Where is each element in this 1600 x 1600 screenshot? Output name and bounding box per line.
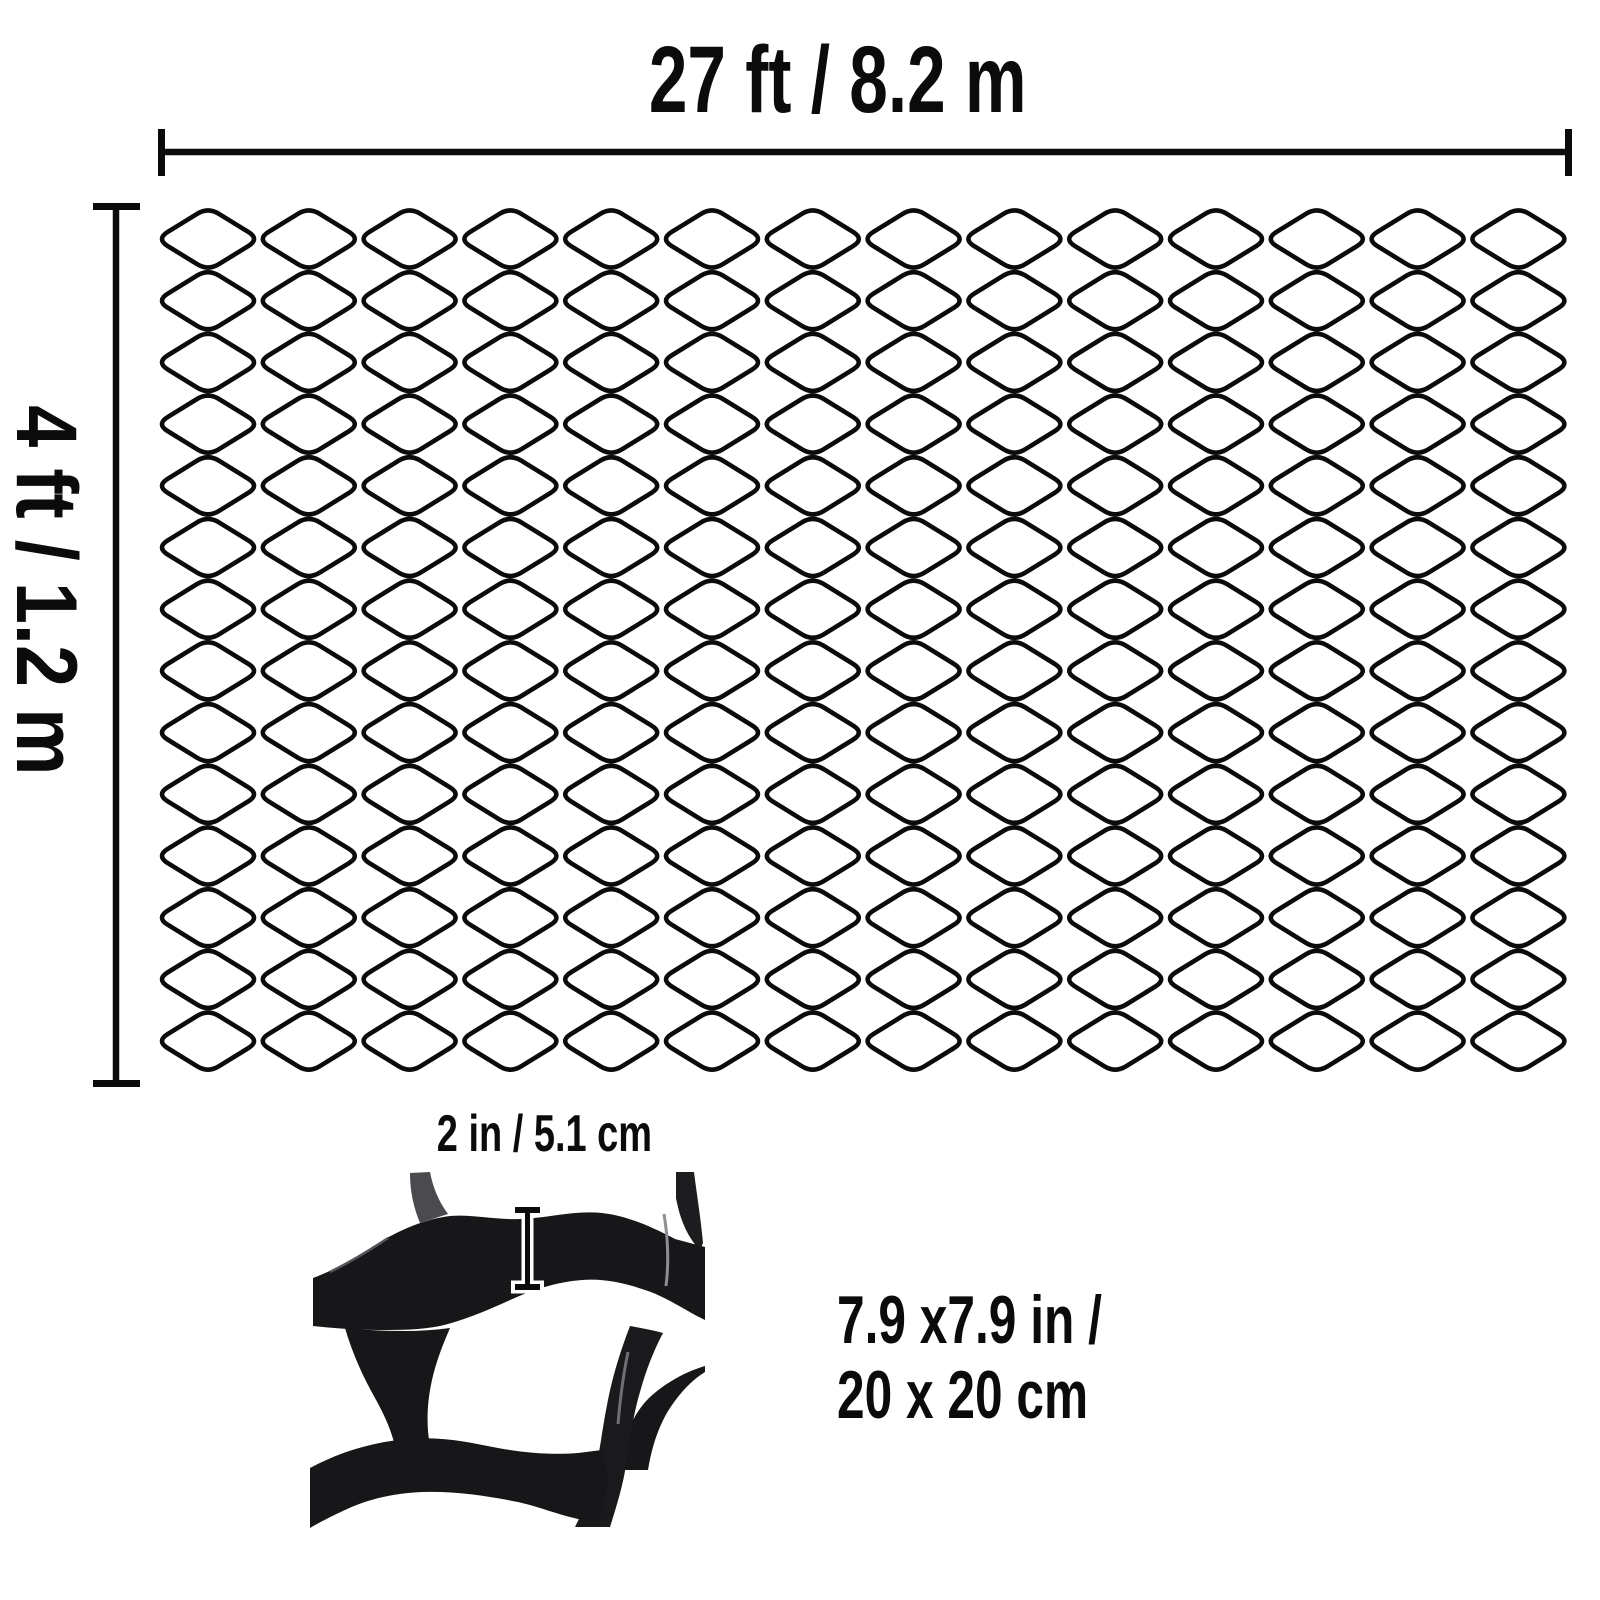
cell-size-line1: 7.9 x7.9 in / [837, 1283, 1102, 1358]
diagram-canvas [0, 0, 1600, 1600]
strip-height-text: 2 in / 5.1 cm [436, 1108, 651, 1160]
photo-strip-top-band [313, 1212, 705, 1330]
cell-size-line2: 20 x 20 cm [837, 1358, 1102, 1433]
photo-strip-fin-left [410, 1172, 448, 1223]
product-dimension-diagram: 27 ft / 8.2 m 4 ft / 1.2 m 2 in / 5.1 cm… [0, 0, 1600, 1600]
photo-strip-fin-right [676, 1172, 703, 1250]
height-dimension-label: 4 ft / 1.2 m [0, 340, 96, 840]
height-dimension-text: 4 ft / 1.2 m [0, 405, 96, 775]
photo-strip-bottom-band [310, 1438, 607, 1528]
cell-size-label: 7.9 x7.9 in / 20 x 20 cm [837, 1283, 1102, 1433]
mesh-pattern [162, 210, 1564, 1069]
geocell-photo [310, 1172, 705, 1528]
photo-strip-left [345, 1328, 450, 1450]
width-dimension-line [158, 129, 1572, 176]
width-dimension-label: 27 ft / 8.2 m [338, 33, 1338, 128]
height-dimension-line [93, 203, 140, 1087]
width-dimension-text: 27 ft / 8.2 m [649, 33, 1027, 128]
strip-height-label: 2 in / 5.1 cm [294, 1108, 794, 1160]
